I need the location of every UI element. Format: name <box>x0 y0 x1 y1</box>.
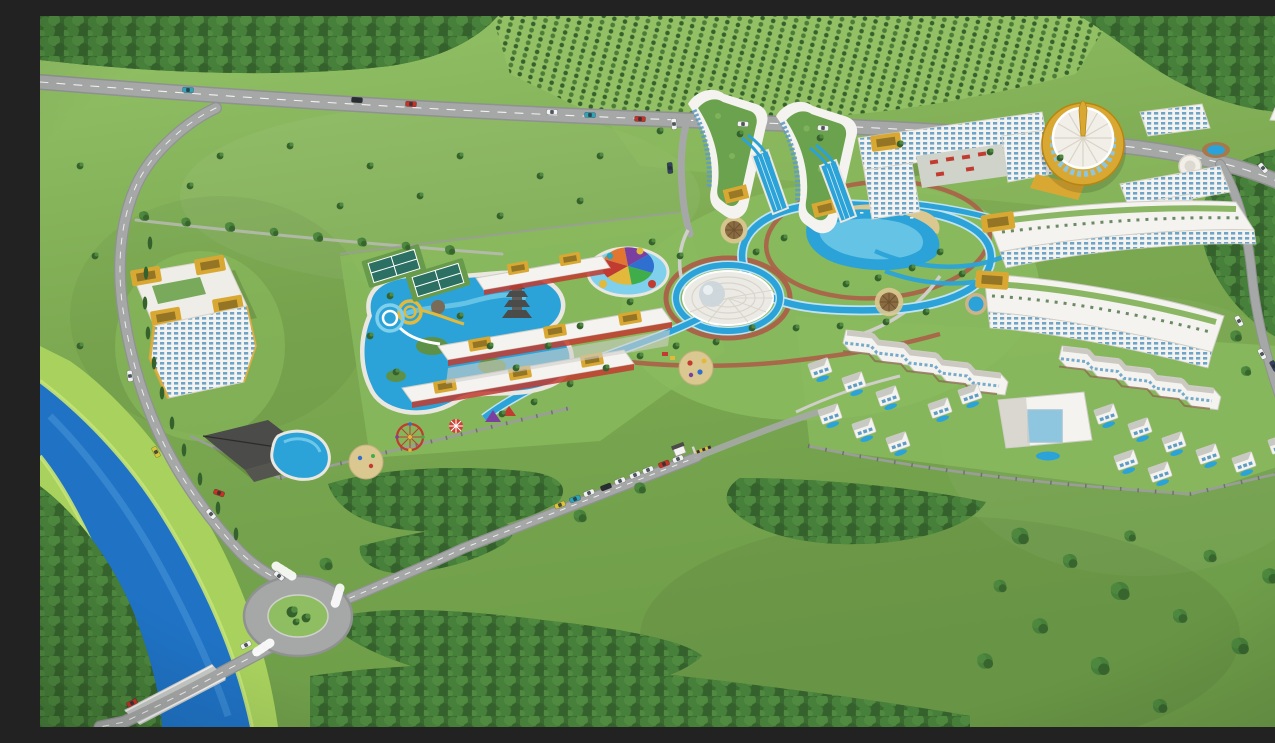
vignette-overlay <box>40 16 1275 727</box>
masterplan-rendering <box>40 16 1275 727</box>
